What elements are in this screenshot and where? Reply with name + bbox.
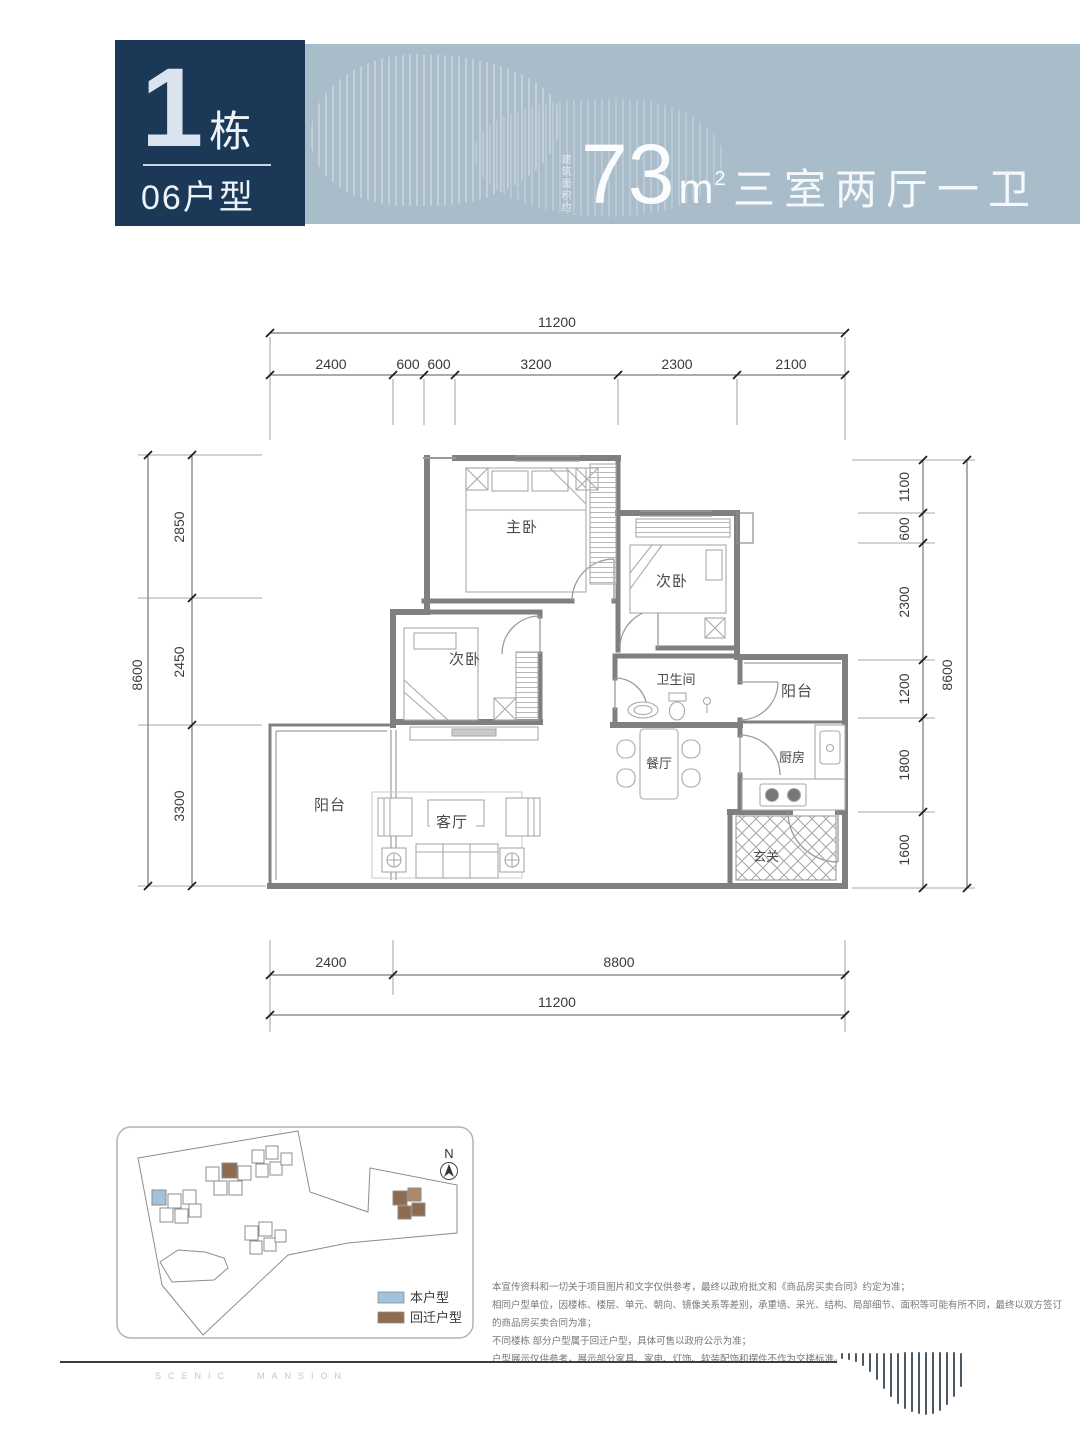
wardrobe [516, 652, 538, 720]
dim-left-seg: 2450 [171, 646, 187, 677]
dim-bottom-total: 11200 [538, 994, 576, 1010]
footer-decor-lines [836, 1338, 976, 1423]
dim-left-seg: 3300 [171, 790, 187, 821]
north-label: N [444, 1146, 453, 1161]
disclaimer-line: 本宣传资料和一切关于项目图片和文字仅供参考，最终以政府批文和《商品房买卖合同》约… [492, 1279, 1067, 1297]
disclaimer-line: 户型展示仅供参考，展示部分家具、家电、灯饰、软装配饰和摆件不作为交楼标准。 [492, 1351, 1067, 1369]
dim-left-total: 8600 [129, 659, 145, 690]
dim-top-seg: 600 [396, 356, 420, 372]
dim-bottom-seg: 2400 [315, 954, 346, 970]
kitchen-sink [820, 731, 840, 764]
room-label-balcony-left: 阳台 [314, 797, 346, 814]
legend-label-this: 本户型 [410, 1290, 449, 1305]
dim-top-seg: 2400 [315, 356, 346, 372]
dim-right-total: 8600 [939, 659, 955, 690]
shower-head [704, 698, 711, 705]
area-row: 73 m2 [581, 132, 726, 216]
sofa [416, 844, 498, 878]
tv [452, 729, 496, 736]
highlight-building-this [152, 1190, 166, 1205]
badge-divider [143, 164, 271, 166]
dim-bottom-seg: 8800 [603, 954, 634, 970]
building-suffix: 栋 [209, 98, 251, 159]
area-value: 73 [581, 132, 674, 216]
layout-summary: 三室两厅一卫 [733, 156, 1039, 217]
dim-top-seg: 600 [427, 356, 451, 372]
chair [617, 769, 635, 787]
room-label-foyer: 玄关 [753, 849, 779, 864]
armchair [378, 798, 412, 836]
sink [628, 702, 658, 718]
dim-right-seg: 2300 [896, 586, 912, 617]
site-plan: N 本户型 回迁户型 [85, 1115, 485, 1350]
dim-top-seg: 3200 [520, 356, 551, 372]
building-number: 1 [141, 56, 203, 159]
area-unit: m2 [678, 165, 725, 213]
legend-swatch-relocation [378, 1312, 404, 1323]
dim-right-seg: 1200 [896, 673, 912, 704]
building-number-row: 1 栋 [141, 56, 251, 159]
legend-label-relocation: 回迁户型 [410, 1310, 462, 1325]
floor-plan: 11200 2400 600 600 3200 2300 2100 8600 2… [100, 295, 1050, 1065]
room-label-bedroom3: 次卧 [449, 651, 481, 668]
armchair [506, 798, 540, 836]
room-label-living: 客厅 [436, 814, 468, 831]
foyer-floor [736, 816, 836, 880]
highlight-building-relocation [222, 1163, 237, 1178]
dim-right-seg: 1600 [896, 834, 912, 865]
dim-top-total: 11200 [538, 314, 576, 330]
room-label-bathroom: 卫生间 [656, 672, 695, 687]
disclaimer-line: 不同楼栋 部分户型属于回迁户型，具体可售以政府公示为准； [492, 1333, 1067, 1351]
dimension-lines [138, 333, 975, 1032]
room-label-bedroom2: 次卧 [656, 573, 688, 590]
chair [682, 740, 700, 758]
dim-right-seg: 1100 [896, 472, 912, 502]
unit-code: 06户型 [141, 170, 255, 219]
room-label-balcony-right: 阳台 [781, 683, 813, 700]
header-band: 建筑面积约 73 m2 三室两厅一卫 [305, 44, 1080, 224]
room-label-master: 主卧 [506, 519, 538, 536]
site-plan-border [117, 1127, 473, 1338]
dim-left-seg: 2850 [171, 511, 187, 542]
chair [617, 740, 635, 758]
dim-top-seg: 2100 [775, 356, 806, 372]
wardrobe [590, 464, 616, 584]
toilet [669, 693, 686, 701]
room-label-kitchen: 厨房 [779, 750, 805, 765]
dim-top-seg: 2300 [661, 356, 692, 372]
building-badge: 1 栋 06户型 [115, 40, 305, 226]
chair [682, 769, 700, 787]
disclaimer: 本宣传资料和一切关于项目图片和文字仅供参考，最终以政府批文和《商品房买卖合同》约… [492, 1279, 1067, 1369]
area-prefix-label: 建筑面积约 [557, 154, 572, 214]
footer-watermark: SCENICMANSION [155, 1371, 348, 1381]
cabinet [636, 519, 730, 537]
disclaimer-line: 相同户型单位，因楼栋、楼层、单元、朝向、镜像关系等差别，承重墙、采光、结构、局部… [492, 1297, 1067, 1333]
room-label-dining: 餐厅 [646, 756, 672, 771]
floorplan-page: 1 栋 06户型 建筑面积约 73 m2 三室两厅一卫 [0, 0, 1080, 1441]
footer-rule [60, 1361, 837, 1363]
dim-right-seg: 1800 [896, 749, 912, 780]
dim-right-seg: 600 [896, 517, 912, 541]
legend-swatch-this [378, 1292, 404, 1303]
